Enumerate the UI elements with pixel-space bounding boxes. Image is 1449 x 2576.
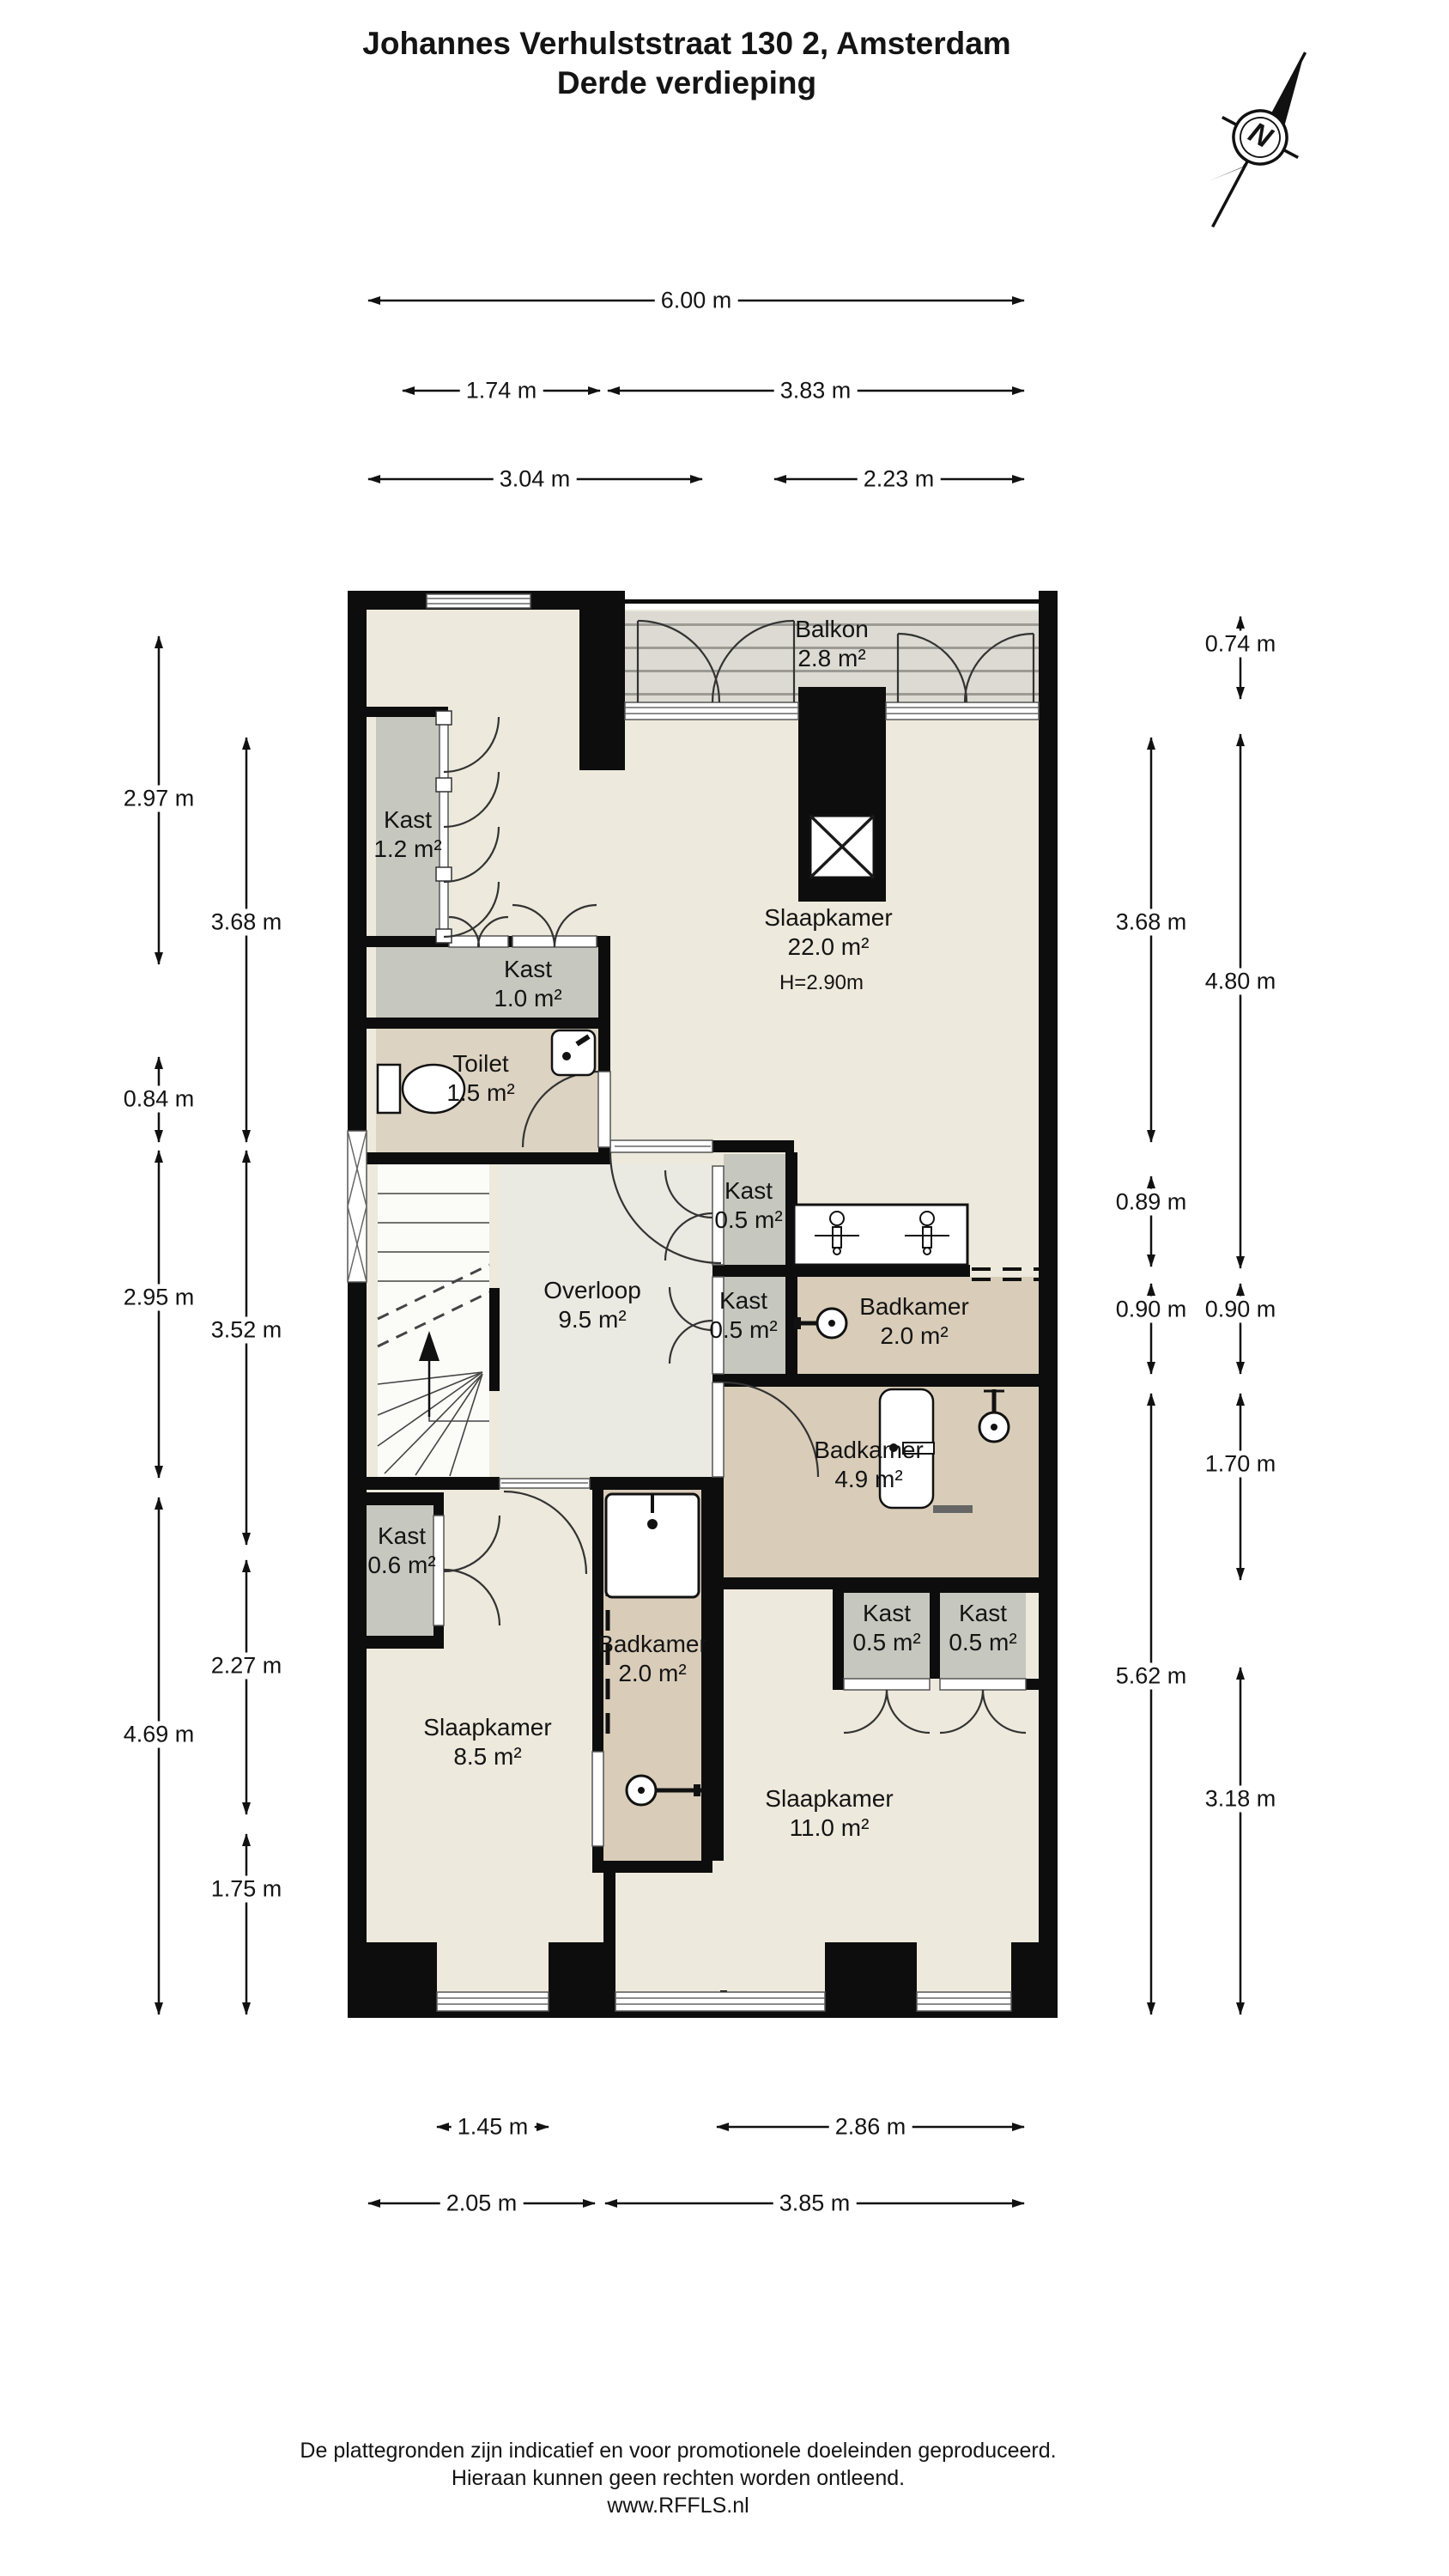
room-label-kast-1-2: Kast1.2 m²: [373, 805, 441, 864]
dim-left-2-95: 2.95 m: [118, 1285, 201, 1311]
floorplan-page: Johannes Verhulststraat 130 2, Amsterdam…: [0, 0, 1449, 2576]
dim-right-3-18: 3.18 m: [1199, 1786, 1282, 1813]
dim-bottom-2: 2.86 m: [829, 2114, 912, 2141]
dim-left-1-75: 1.75 m: [205, 1876, 288, 1903]
room-height-slaapkamer-22: H=2.90m: [779, 969, 864, 998]
dim-top-right2: 2.23 m: [858, 466, 941, 493]
room-label-slaapkamer-11: Slaapkamer11.0 m²: [765, 1784, 893, 1843]
room-label-badkamer-2-0-r: Badkamer2.0 m²: [859, 1292, 969, 1351]
room-label-badkamer-4-9: Badkamer4.9 m²: [814, 1436, 924, 1494]
dim-left-3-68: 3.68 m: [205, 909, 288, 936]
toilet-tank-icon: [378, 1065, 400, 1113]
room-label-kast-0-5-d: Kast0.5 m²: [949, 1599, 1016, 1657]
room-label-kast-0-5-a: Kast0.5 m²: [714, 1176, 782, 1235]
dim-bottom-4: 3.85 m: [773, 2190, 857, 2217]
dim-top-left2: 3.04 m: [494, 466, 577, 493]
room-label-balkon: Balkon2.8 m²: [795, 615, 869, 673]
dim-right-0-90a: 0.90 m: [1110, 1297, 1193, 1323]
dim-left-0-84: 0.84 m: [118, 1086, 201, 1113]
footer-disclaimer-1: De plattegronden zijn indicatief en voor…: [300, 2439, 1056, 2464]
room-label-kast-0-5-c: Kast0.5 m²: [852, 1599, 920, 1657]
dim-left-2-27: 2.27 m: [205, 1653, 288, 1680]
dim-right-5-62: 5.62 m: [1110, 1663, 1193, 1690]
room-label-slaapkamer-8-5: Slaapkamer8.5 m²: [423, 1713, 551, 1771]
room-label-kast-1-0: Kast1.0 m²: [494, 955, 561, 1013]
page-title: Johannes Verhulststraat 130 2, Amsterdam: [362, 26, 1010, 62]
dim-top-left: 1.74 m: [460, 378, 543, 404]
dim-left-2-97: 2.97 m: [118, 786, 201, 812]
room-label-slaapkamer-22: Slaapkamer22.0 m²: [764, 903, 892, 962]
room-label-toilet: Toilet1.5 m²: [446, 1049, 514, 1108]
dim-left-4-69: 4.69 m: [118, 1722, 201, 1748]
room-label-kast-0-6: Kast0.6 m²: [367, 1522, 435, 1580]
room-label-badkamer-2-0-b: Badkamer2.0 m²: [597, 1630, 707, 1688]
dim-bottom-3: 2.05 m: [440, 2190, 524, 2217]
dim-right-0-90b: 0.90 m: [1199, 1297, 1282, 1323]
room-label-overloop: Overloop9.5 m²: [543, 1276, 641, 1334]
dim-right-3-68: 3.68 m: [1110, 909, 1193, 936]
room-label-kast-0-5-b: Kast0.5 m²: [709, 1286, 777, 1345]
dim-right-4-80: 4.80 m: [1199, 969, 1282, 995]
footer-website: www.RFFLS.nl: [607, 2494, 749, 2518]
dim-top-right: 3.83 m: [774, 378, 858, 404]
footer-disclaimer-2: Hieraan kunnen geen rechten worden ontle…: [452, 2466, 905, 2491]
dim-right-1-70: 1.70 m: [1199, 1451, 1282, 1478]
dim-left-3-52: 3.52 m: [205, 1317, 288, 1344]
dim-right-0-89: 0.89 m: [1110, 1189, 1193, 1216]
dim-top-total: 6.00 m: [655, 288, 738, 314]
dim-right-0-74: 0.74 m: [1199, 631, 1282, 658]
dim-bottom-1: 1.45 m: [452, 2114, 535, 2141]
page-subtitle: Derde verdieping: [557, 65, 816, 101]
